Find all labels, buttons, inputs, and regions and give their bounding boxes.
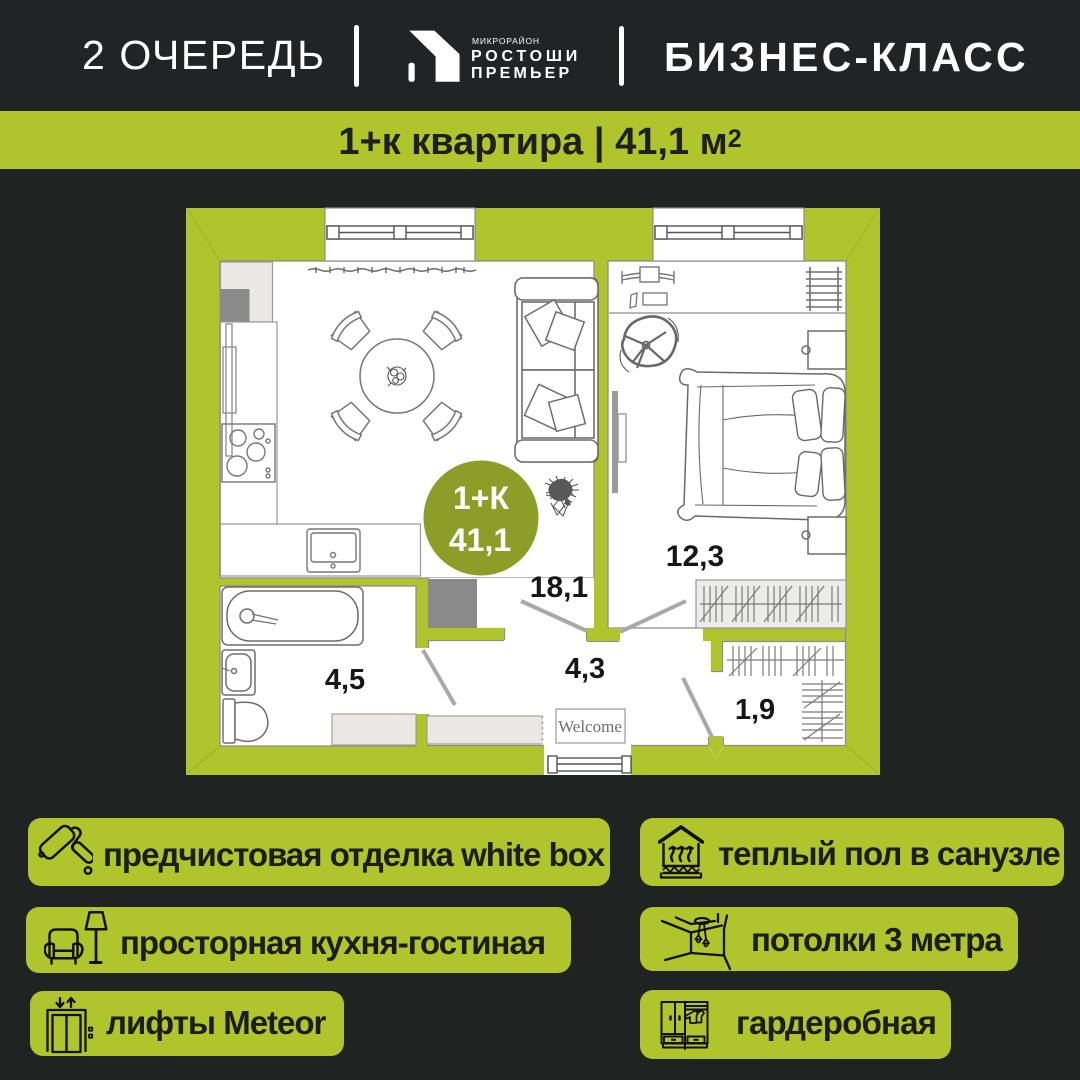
- svg-text:1,9: 1,9: [735, 694, 775, 726]
- svg-text:41,1: 41,1: [449, 522, 511, 558]
- svg-text:18,1: 18,1: [530, 571, 588, 604]
- svg-text:4,5: 4,5: [325, 664, 365, 696]
- svg-text:Welcome: Welcome: [558, 717, 622, 736]
- svg-text:1+К: 1+К: [453, 480, 509, 516]
- svg-text:4,3: 4,3: [565, 653, 605, 685]
- svg-text:12,3: 12,3: [666, 540, 724, 573]
